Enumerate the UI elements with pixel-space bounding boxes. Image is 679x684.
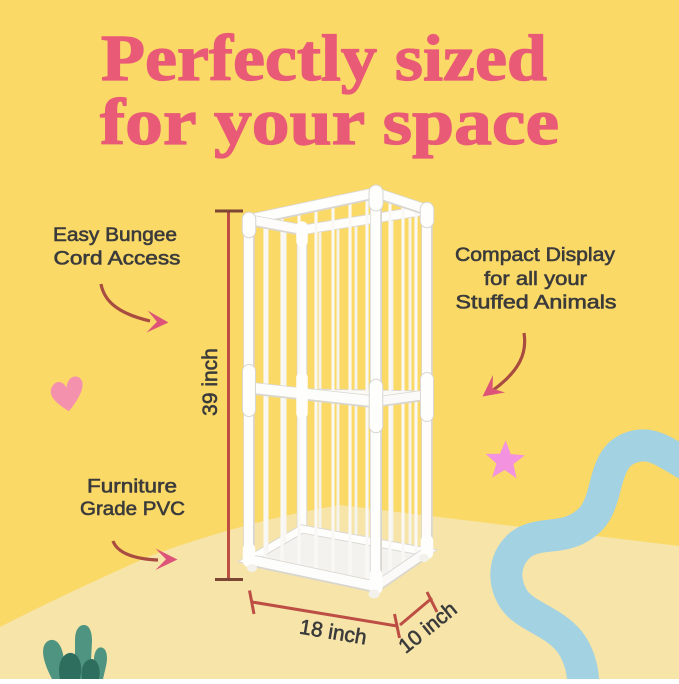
svg-text:39 inch: 39 inch xyxy=(199,348,222,416)
svg-text:Easy Bungee: Easy Bungee xyxy=(53,224,177,246)
svg-text:Perfectly sized: Perfectly sized xyxy=(101,22,547,95)
svg-text:Furniture: Furniture xyxy=(87,476,177,498)
svg-text:Cord Access: Cord Access xyxy=(54,248,181,270)
svg-text:Compact Display: Compact Display xyxy=(455,244,615,266)
svg-text:for all your: for all your xyxy=(484,268,588,290)
svg-text:for your space: for your space xyxy=(100,86,559,159)
svg-text:Grade PVC: Grade PVC xyxy=(80,498,185,520)
svg-text:Stuffed Animals: Stuffed Animals xyxy=(456,292,617,314)
